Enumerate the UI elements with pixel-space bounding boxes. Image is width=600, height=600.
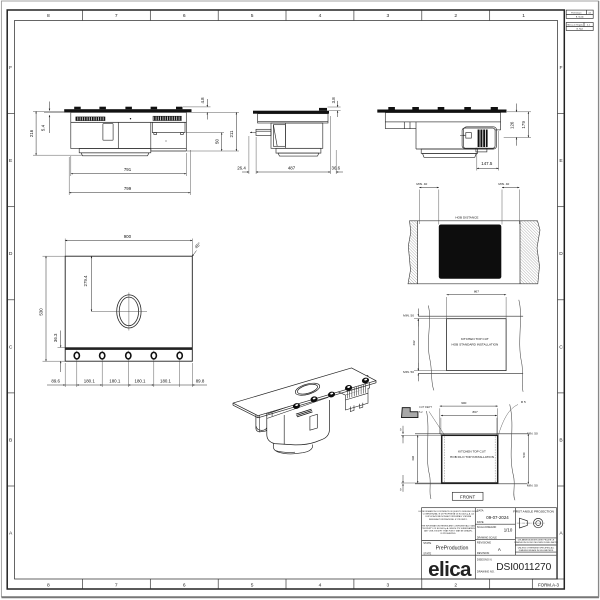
svg-text:KITCHEN TOP CUT: KITCHEN TOP CUT [458,450,486,454]
svg-text:DSI0011270: DSI0011270 [496,562,551,573]
svg-text:MIN. 50: MIN. 50 [403,313,414,317]
svg-text:A: A [498,547,501,552]
svg-text:3: 3 [387,582,390,588]
svg-text:36.3: 36.3 [53,333,58,342]
svg-text:6: 6 [183,13,186,19]
svg-text:6: 6 [183,582,186,588]
svg-text:DISEGNO N.: DISEGNO N. [477,557,493,561]
svg-text:F: F [9,65,12,71]
svg-text:elica: elica [428,558,472,581]
svg-text:7: 7 [115,582,118,588]
svg-text:180.1: 180.1 [135,378,147,383]
svg-text:1/10: 1/10 [504,528,513,533]
svg-text:8: 8 [47,582,50,588]
svg-text:8: 8 [47,13,50,19]
svg-text:FORM.A-3: FORM.A-3 [538,583,560,588]
svg-text:5: 5 [400,488,402,492]
svg-text:MIN. 40: MIN. 40 [498,182,509,186]
svg-text:DUPLICAZIONE NON AUTORIZZATA E: DUPLICAZIONE NON AUTORIZZATA E' VIETATA [426,515,472,518]
svg-text:FIRST ANGLE PROJECTION: FIRST ANGLE PROJECTION [513,509,554,513]
svg-text:PreProduction: PreProduction [436,545,469,551]
svg-text:DRAWING SCALE: DRAWING SCALE [477,536,497,539]
svg-text:2: 2 [454,582,457,588]
svg-text:D: D [9,251,13,257]
svg-text:799: 799 [124,186,132,191]
svg-text:SENZA AUTORIZZAZIONE. E' PROIB: SENZA AUTORIZZAZIONE. E' PROIBITO. [429,518,468,521]
svg-text:DIE ABMESSUNGEN DREI PELATE LE: DIE ABMESSUNGEN DREI PELATE LE [518,539,555,542]
svg-text:216: 216 [29,129,34,137]
svg-text:900: 900 [124,234,132,239]
svg-text:REVISIONE: REVISIONE [477,541,491,545]
svg-text:MIN. 50: MIN. 50 [527,483,538,487]
svg-text:DATE: DATE [477,520,484,524]
svg-text:487: 487 [288,165,296,170]
svg-text:MIN. 50: MIN. 50 [527,431,538,435]
svg-text:7: 7 [115,13,118,19]
svg-text:DRAWING NO.: DRAWING NO. [477,569,495,573]
svg-text:147.5: 147.5 [481,161,493,166]
svg-text:4: 4 [319,13,322,19]
svg-text:530: 530 [39,308,44,316]
svg-text:C: C [559,344,563,350]
svg-text:IS PROHIBITED.: IS PROHIBITED. [441,533,457,535]
svg-text:D: D [559,251,563,257]
svg-text:STATE: STATE [423,551,431,555]
svg-text:3.8: 3.8 [331,97,336,104]
svg-text:530: 530 [522,452,526,457]
svg-text:CONFIDENZIALI E DI PROPRIETA': CONFIDENZIALI E DI PROPRIETA' DI ELICA S… [423,513,475,516]
svg-text:ANY USE, EXCEPT THAT FOR IT MA: ANY USE, EXCEPT THAT FOR IT MAY BE DRAWN… [424,530,473,533]
svg-text:179: 179 [521,121,526,129]
svg-text:CUT DEPT: CUT DEPT [419,405,432,409]
svg-text:180.1: 180.1 [109,378,121,383]
svg-text:492: 492 [411,455,415,460]
svg-text:B. Nud: B. Nud [577,29,583,31]
svg-text:4.8: 4.8 [200,97,205,104]
svg-text:89.8: 89.8 [196,378,205,383]
svg-text:F: F [560,65,563,71]
svg-text:2: 2 [454,13,457,19]
svg-text:89.6: 89.6 [51,378,60,383]
svg-text:B: B [9,437,12,443]
svg-text:492: 492 [412,340,416,345]
svg-text:HOB STANDARD INSTALLATION: HOB STANDARD INSTALLATION [452,342,499,346]
svg-text:SCALA DISEGNO: SCALA DISEGNO [477,526,497,529]
svg-text:1: 1 [522,13,525,19]
svg-text:Preliminare: Preliminare [571,11,582,14]
svg-text:PROPERTY OF ELICA S.p.A. WHIC: PROPERTY OF ELICA S.p.A. WHICH ITS SUBSI… [422,527,476,530]
svg-text:DIMENSIONI SONO INDICATE IN MI: DIMENSIONI SONO INDICATE IN MILLIMETRI [514,541,558,544]
svg-text:5: 5 [400,428,402,432]
svg-text:Messa in Regola: Messa in Regola [567,25,583,27]
svg-text:36.6: 36.6 [332,166,341,171]
svg-text:B: B [559,437,562,443]
svg-text:867: 867 [473,410,478,414]
svg-text:5.4: 5.4 [40,124,45,131]
svg-text:5.2: 5.2 [419,410,423,414]
svg-text:126: 126 [509,121,514,129]
svg-text:REVISION: REVISION [477,551,490,555]
svg-text:180.1: 180.1 [160,378,172,383]
svg-text:279.4: 279.4 [83,275,88,287]
svg-text:FRONT: FRONT [460,494,475,499]
svg-text:867: 867 [474,289,479,293]
svg-text:900: 900 [461,401,466,405]
svg-text:B. Sandi: B. Sandi [576,17,584,19]
svg-text:3: 3 [387,13,390,19]
svg-text:MIN. 40: MIN. 40 [416,182,427,186]
svg-text:THE INFORMATION HEREIN ARE CON: THE INFORMATION HEREIN ARE CONFIDENTIALL… [421,524,476,527]
svg-text:09-07-2024: 09-07-2024 [486,515,509,520]
svg-text:180.1: 180.1 [84,378,96,383]
svg-text:5: 5 [251,13,254,19]
svg-text:STATE: STATE [423,541,431,545]
svg-text:LE INFORMAZIONI CONTENUTE IN Q: LE INFORMAZIONI CONTENUTE IN QUESTO DISE… [418,510,478,513]
svg-text:211: 211 [229,130,234,138]
svg-text:26.4: 26.4 [237,165,246,170]
svg-text:R 5: R 5 [521,400,526,404]
svg-text:KITCHEN TOP CUT: KITCHEN TOP CUT [461,337,489,341]
svg-text:791: 791 [124,167,132,172]
svg-text:MIN. 50: MIN. 50 [403,370,414,374]
svg-text:4: 4 [319,582,322,588]
svg-text:C: C [9,344,13,350]
svg-text:DIMENSIONS ARE IN MILLIMETERS: DIMENSIONS ARE IN MILLIMETERS [519,549,554,552]
svg-text:UNLESS OTHERWISE SPECIFIED ALL: UNLESS OTHERWISE SPECIFIED ALL [518,546,555,549]
svg-text:HOB FILO TOP INSTALLATION: HOB FILO TOP INSTALLATION [450,455,494,459]
svg-text:5: 5 [251,582,254,588]
svg-text:50: 50 [215,139,220,144]
svg-text:HOB DISTANCE: HOB DISTANCE [455,216,478,220]
